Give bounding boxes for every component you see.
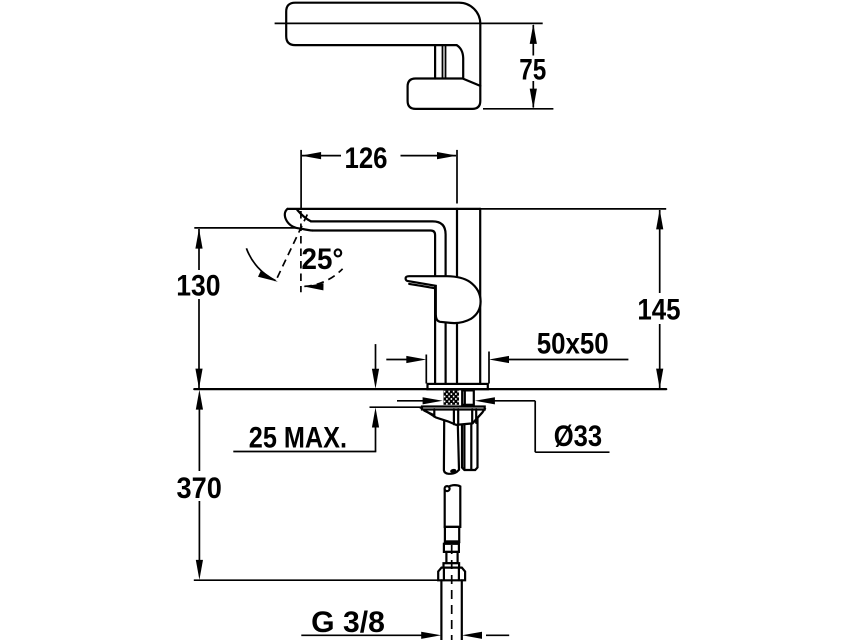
svg-text:370: 370 <box>177 472 222 505</box>
svg-text:126: 126 <box>345 142 388 175</box>
svg-text:50x50: 50x50 <box>537 328 609 361</box>
svg-text:25 MAX.: 25 MAX. <box>249 422 347 455</box>
svg-text:G 3/8: G 3/8 <box>311 606 385 639</box>
svg-text:130: 130 <box>176 269 220 302</box>
svg-text:145: 145 <box>637 293 680 326</box>
svg-text:25°: 25° <box>302 243 344 276</box>
svg-text:75: 75 <box>519 54 546 87</box>
svg-text:Ø33: Ø33 <box>554 420 602 453</box>
